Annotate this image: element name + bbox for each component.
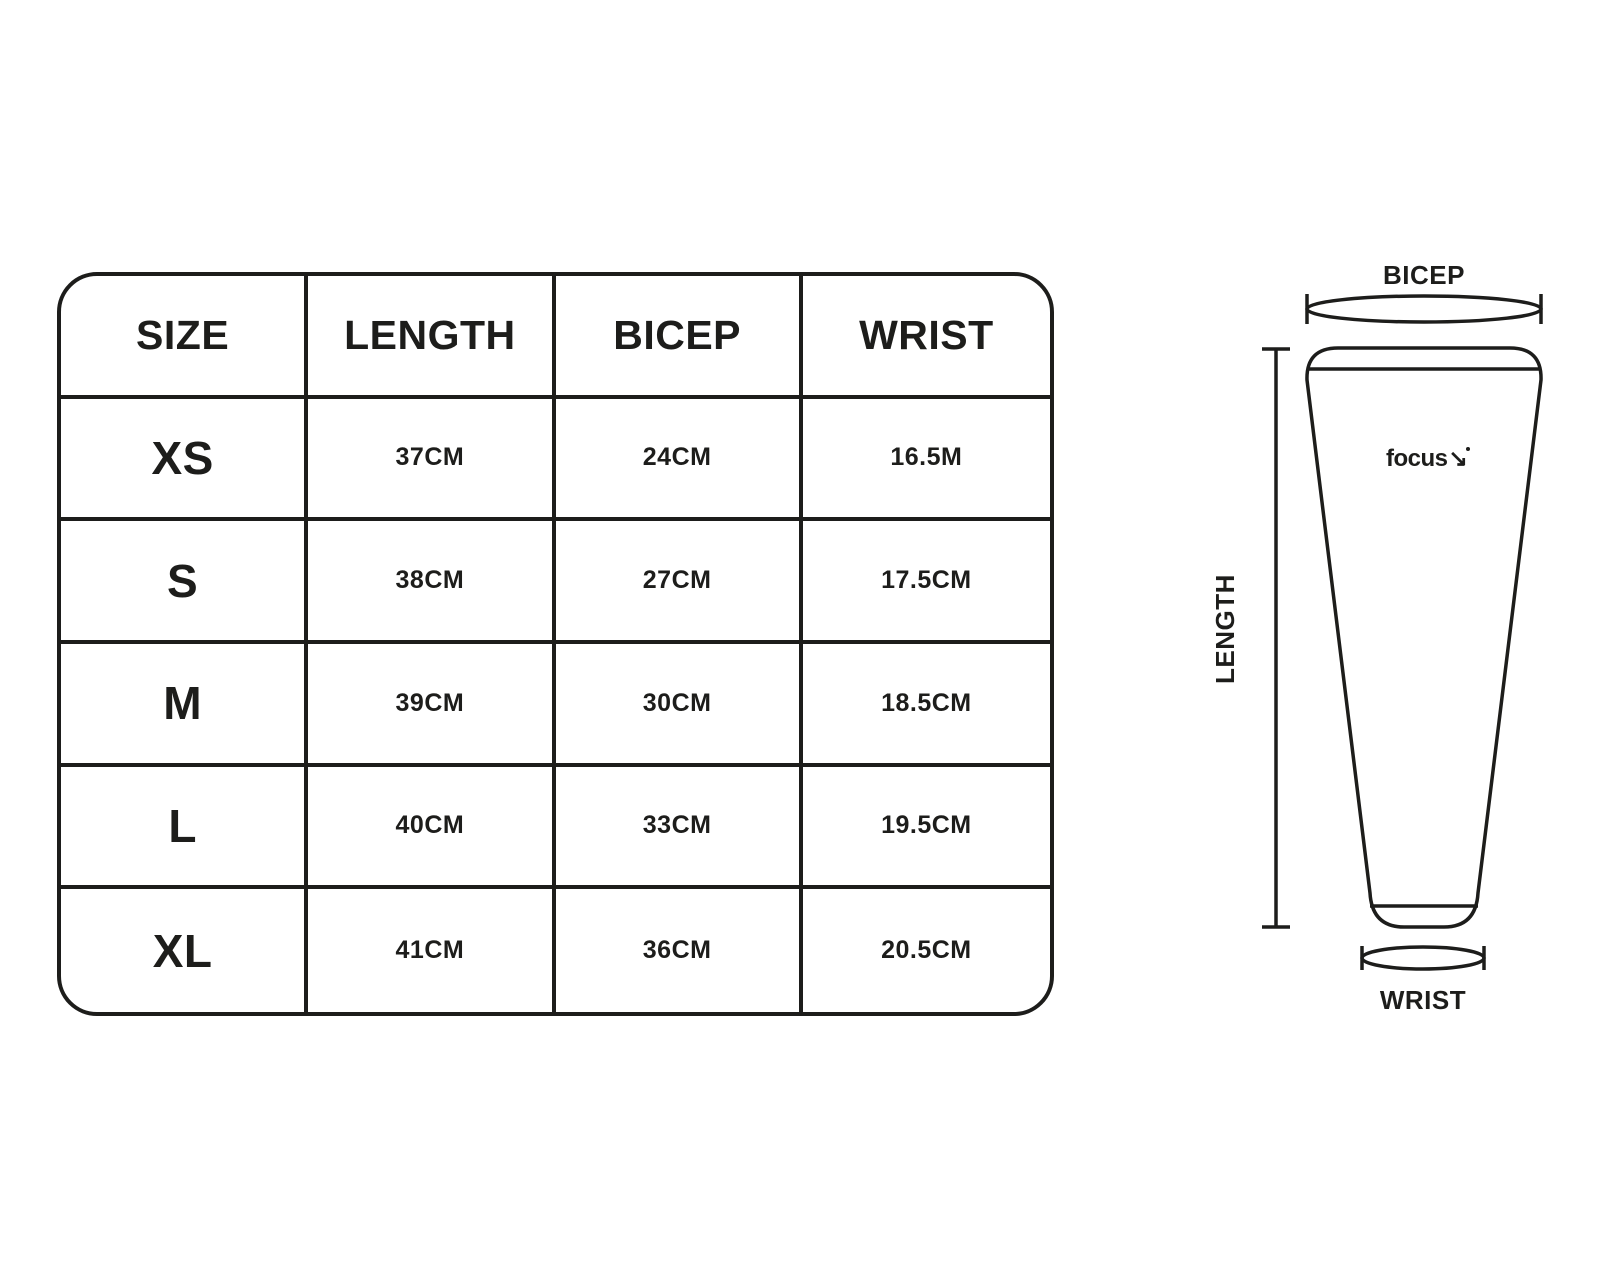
bicep-ellipse — [1307, 296, 1541, 322]
arrow-down-right-icon: ↘ — [1449, 445, 1468, 471]
logo-wordmark: focus — [1386, 445, 1448, 472]
wrist-ellipse — [1362, 947, 1484, 969]
arm-sleeve-outline — [1307, 348, 1541, 927]
wrist-dimension-label: WRIST — [1380, 985, 1466, 1015]
sleeve-body — [1307, 348, 1541, 927]
length-dimension-label: LENGTH — [1210, 574, 1240, 684]
bicep-dimension-label: BICEP — [1383, 260, 1465, 290]
bicep-measure-icon — [1307, 294, 1541, 324]
svg-text:focus↘: focus↘ — [1386, 445, 1467, 472]
wrist-measure-icon — [1362, 946, 1484, 970]
logo-trademark-dot — [1466, 447, 1470, 451]
length-measure-icon — [1262, 349, 1290, 927]
focus-logo: focus↘ — [1386, 445, 1470, 472]
sleeve-measurement-diagram: BICEP focus↘ LENGTH — [0, 0, 1600, 1280]
size-chart-page: SIZE LENGTH BICEP WRIST XS 37CM 24CM 16.… — [0, 0, 1600, 1280]
